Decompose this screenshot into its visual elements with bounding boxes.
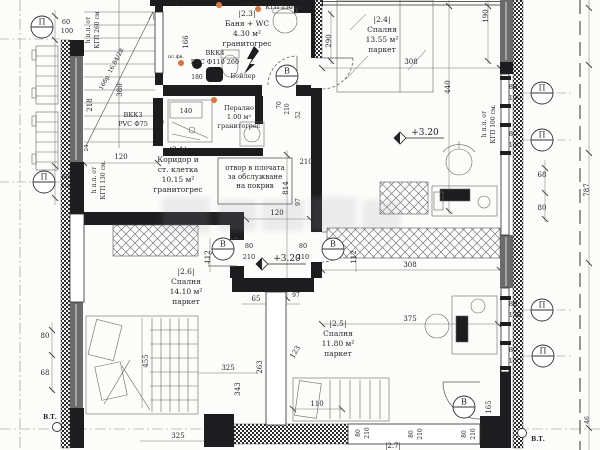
dim-label: 80	[538, 204, 547, 212]
floor-plan-sheet: 164КГП 130 смпс.фв.пс.фв.601006010012012…	[0, 0, 600, 450]
dim-label: h п.п. от	[91, 166, 98, 193]
dim-label: 814	[282, 181, 290, 195]
sink	[273, 8, 297, 33]
window-marker: П	[531, 299, 553, 321]
dim-label: 308	[404, 58, 417, 66]
dim-label: 97	[295, 198, 302, 206]
dim-label: 130	[509, 357, 521, 365]
svg-text:П: П	[539, 301, 546, 310]
dim-label: 165	[485, 400, 493, 413]
dim-label: |2.7|	[385, 442, 401, 450]
vkk3-riser-label: ВКК3PVC Ф75	[118, 111, 148, 128]
dim-label: 65	[252, 295, 261, 303]
level-marker: +3.20	[394, 128, 444, 144]
window-marker: П	[33, 171, 55, 193]
floor-plan-drawing: 164КГП 130 смпс.фв.пс.фв.601006010012012…	[0, 0, 600, 450]
dim-label: 80	[509, 130, 517, 138]
dim-label: 218	[86, 98, 94, 111]
dim-label: 110	[310, 400, 323, 408]
dim-label: 210	[299, 158, 312, 166]
dim-label: 80	[509, 346, 517, 354]
door-marker: В	[212, 238, 234, 260]
facade-element-bottom	[32, 112, 58, 170]
laundry-label: Перално1.00 м²гранитогрес	[218, 104, 261, 130]
dim-label: 80	[509, 83, 517, 91]
svg-text:В.Т.: В.Т.	[43, 414, 57, 421]
room-label: |2.5|Спалня11.80 м²паркет	[322, 319, 355, 358]
svg-text:+3.20: +3.20	[273, 254, 301, 264]
dim-label: h п.п. от	[85, 16, 92, 43]
window-marker: П	[532, 345, 554, 367]
dim-label: 210	[243, 253, 255, 261]
dim-label: 80	[355, 429, 362, 437]
dim-label: 80	[509, 300, 517, 308]
svg-text:П: П	[539, 84, 546, 93]
dim-label: 180	[191, 74, 203, 81]
dim-label: КГП 130 см	[265, 4, 302, 11]
dim-label: КГП 100 см.	[490, 104, 497, 143]
dim-label: 130	[509, 141, 521, 149]
svg-text:В: В	[284, 67, 290, 76]
boiler-symbol	[206, 67, 223, 82]
dim-label: 80	[461, 430, 468, 438]
svg-text:П: П	[540, 347, 547, 356]
dim-label: 455	[142, 354, 150, 367]
desk-24	[432, 141, 497, 216]
dim-label: 80	[299, 242, 307, 250]
room-label: |2.6|Спалня14.10 м²паркет	[170, 267, 203, 306]
dim-label: 130	[509, 311, 521, 319]
dim-label: 100	[61, 182, 73, 190]
ps-fv-dot	[211, 97, 217, 103]
dim-label: 130	[509, 94, 521, 102]
dim-label: 60	[62, 173, 70, 181]
electric-symbol	[244, 46, 259, 74]
dim-label: 100	[61, 27, 73, 35]
svg-text:В: В	[461, 398, 467, 407]
dim-label: 440	[444, 80, 452, 93]
dim-label: 60	[62, 18, 70, 26]
dim-label: 68	[538, 171, 547, 179]
dim-label: 375	[403, 315, 416, 323]
dim-label: 325	[171, 432, 184, 440]
window-marker: П	[31, 16, 53, 38]
dim-label: 166	[182, 35, 190, 49]
dim-label: 80	[408, 430, 415, 438]
dim-label: 70	[276, 101, 283, 109]
dim-label: КГП 130 см.	[100, 160, 107, 199]
door-marker: В	[276, 65, 298, 87]
dim-label: 46	[584, 416, 591, 424]
svg-text:В: В	[220, 240, 226, 249]
dim-label: h п.п. от	[481, 110, 488, 137]
dim-label: 120	[270, 209, 283, 217]
dim-label: 123	[288, 344, 302, 360]
room-label: |2.4|Спалня13.55 м²паркет	[366, 15, 399, 54]
vkk4-riser-label: ВКК4PVC Ф110 260	[191, 49, 239, 66]
dim-label: 80	[245, 242, 253, 250]
facade-element-top	[32, 46, 58, 104]
dim-label: 210	[470, 428, 477, 440]
dim-label: КГП 260 см	[94, 11, 101, 48]
level-marker: +3.20	[256, 254, 306, 270]
dim-label: 325	[221, 364, 234, 372]
dim-label: 210	[417, 428, 424, 440]
window-marker: П	[531, 82, 553, 104]
ps-fv-dot	[255, 6, 261, 12]
door-marker: В	[453, 396, 475, 418]
bed-25	[293, 378, 389, 421]
dim-label: 787	[583, 183, 591, 196]
dim-label: 68	[41, 369, 50, 377]
dim-label: 112	[350, 250, 358, 263]
dim-label: пс.фв.	[168, 53, 184, 60]
svg-text:+3.20: +3.20	[411, 128, 439, 138]
dim-label: 52	[295, 111, 302, 119]
svg-text:В.Т.: В.Т.	[531, 436, 545, 443]
dim-label: 343	[234, 382, 242, 395]
dim-label: 140	[180, 107, 192, 115]
dim-label: 210	[284, 103, 291, 115]
door-marker: В	[322, 238, 344, 260]
dim-label: 112	[204, 250, 212, 263]
dim-label: 190	[482, 9, 490, 22]
dim-label: 263	[256, 360, 264, 373]
vkk3-pipe	[155, 118, 164, 127]
roof-opening-note-label: отвор в плочатаза обслужванена покрив	[225, 164, 284, 190]
dim-label: 308	[403, 261, 416, 269]
dim-label: 24	[84, 144, 90, 151]
dim-label: 380	[116, 83, 124, 96]
dim-label: 290	[325, 34, 333, 47]
dim-label: 80	[41, 332, 50, 340]
dim-label: 97	[292, 292, 300, 299]
ps-fv-dot	[216, 2, 222, 8]
dim-label: 164	[165, 0, 179, 7]
svg-text:В: В	[330, 240, 336, 249]
desk-25	[425, 296, 497, 354]
dim-label: Бойлер	[230, 72, 255, 80]
dim-label: 120	[114, 153, 127, 161]
svg-text:П: П	[39, 18, 46, 27]
window-marker: П	[531, 129, 553, 151]
svg-text:П: П	[41, 173, 48, 182]
svg-text:П: П	[539, 131, 546, 140]
room-label: |2.3|Баня + WC4.30 м²гранитогрес	[222, 9, 271, 48]
ps-fv-dot	[178, 60, 184, 66]
dim-label: 210	[364, 427, 371, 439]
dim-label: пс.фв.	[244, 0, 260, 7]
